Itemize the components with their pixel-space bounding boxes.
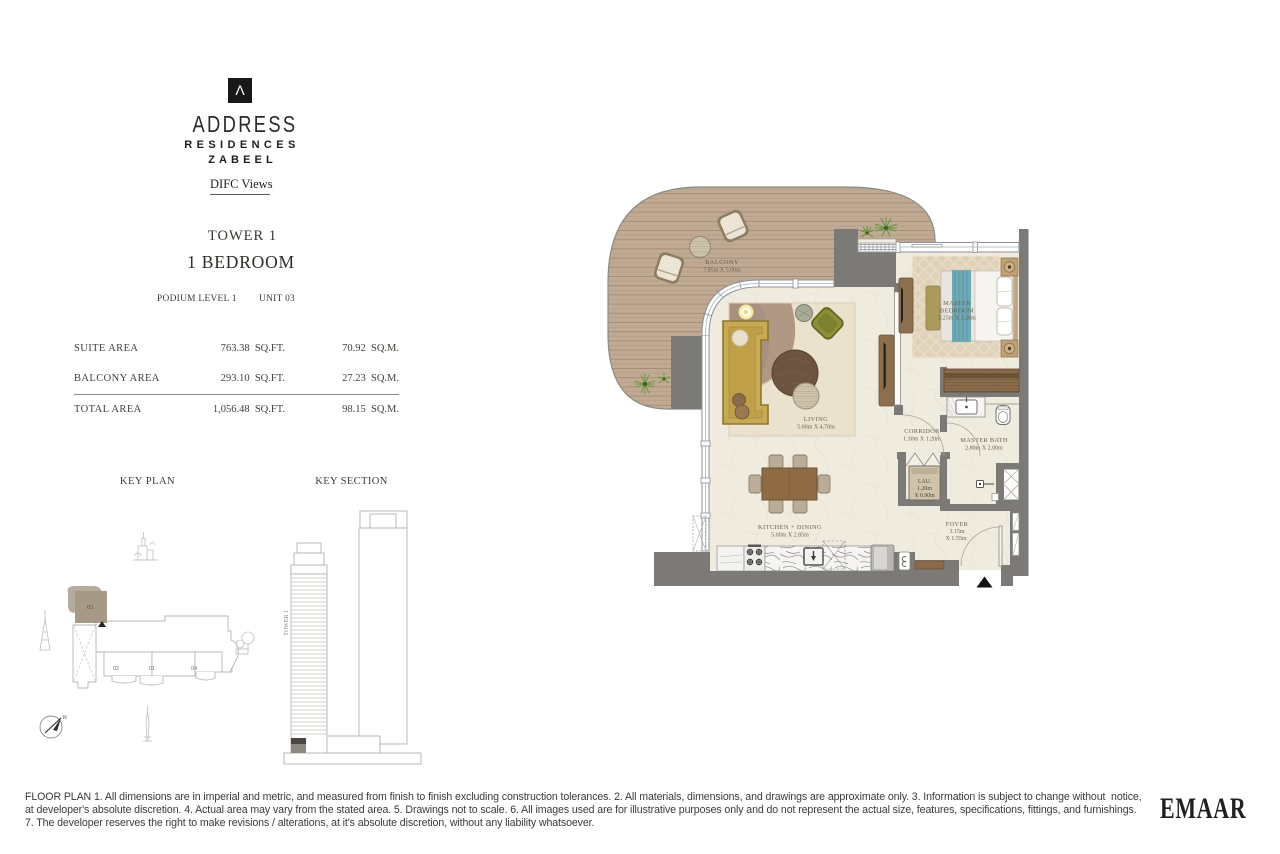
svg-text:5.00m X 4.70m: 5.00m X 4.70m <box>797 425 835 431</box>
svg-text:01: 01 <box>149 666 155 672</box>
svg-text:04: 04 <box>191 666 197 672</box>
svg-text:LAU.: LAU. <box>918 479 932 485</box>
svg-text:7.85m X 5.00m: 7.85m X 5.00m <box>703 268 741 274</box>
svg-text:2.80m X 2.00m: 2.80m X 2.00m <box>965 446 1003 452</box>
svg-text:KITCHEN + DINING: KITCHEN + DINING <box>758 524 822 531</box>
svg-text:N: N <box>63 715 67 721</box>
svg-text:CORRIDOR: CORRIDOR <box>904 428 940 435</box>
svg-text:MASTER: MASTER <box>943 300 971 307</box>
svg-text:BEDROOM: BEDROOM <box>940 308 974 315</box>
svg-text:1.20m: 1.20m <box>917 486 932 492</box>
svg-text:02: 02 <box>113 666 119 672</box>
svg-text:MASTER BATH: MASTER BATH <box>960 437 1008 444</box>
svg-text:03: 03 <box>87 604 94 611</box>
svg-text:3.15m: 3.15m <box>949 529 965 535</box>
svg-text:5.00m X 2.85m: 5.00m X 2.85m <box>771 533 809 539</box>
svg-text:BALCONY: BALCONY <box>705 259 739 266</box>
svg-text:X 0.90m: X 0.90m <box>914 493 935 499</box>
svg-text:3.25m X 3.20m: 3.25m X 3.20m <box>938 316 976 322</box>
svg-text:X 1.55m: X 1.55m <box>946 536 967 542</box>
svg-text:FOYER: FOYER <box>946 521 969 528</box>
svg-text:1.30m X 1.20m: 1.30m X 1.20m <box>903 437 941 443</box>
svg-text:TOWER 1: TOWER 1 <box>284 610 290 636</box>
svg-text:LIVING: LIVING <box>804 416 828 423</box>
